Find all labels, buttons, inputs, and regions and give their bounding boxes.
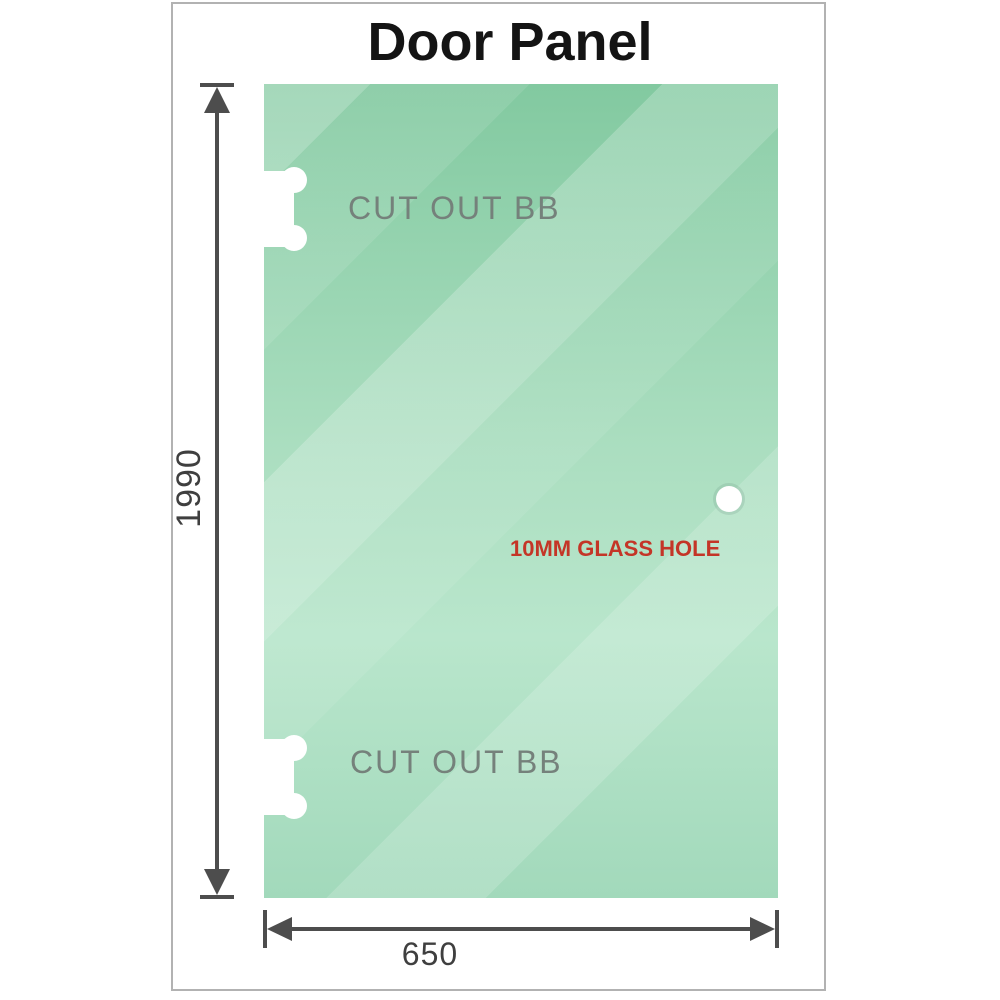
glass-panel: CUT OUT BB 10MM GLASS HOLE CUT OUT BB (264, 84, 778, 898)
diagram-title: Door Panel (210, 12, 810, 72)
glass-hole-icon (716, 486, 742, 512)
hinge-cutout-top (262, 165, 310, 255)
hinge-cutout-shape-icon (262, 733, 310, 823)
width-dimension-label: 650 (385, 936, 475, 973)
hinge-cutout-bottom (262, 733, 310, 823)
door-panel-diagram: Door Panel CUT OUT BB 10MM GLASS HOLE (0, 0, 1000, 1000)
cutout-label-top: CUT OUT BB (348, 191, 561, 225)
height-dimension-label: 1990 (169, 448, 209, 528)
glass-hole-label: 10MM GLASS HOLE (510, 537, 710, 561)
hinge-cutout-shape-icon (262, 165, 310, 255)
cutout-label-bottom: CUT OUT BB (350, 745, 563, 779)
